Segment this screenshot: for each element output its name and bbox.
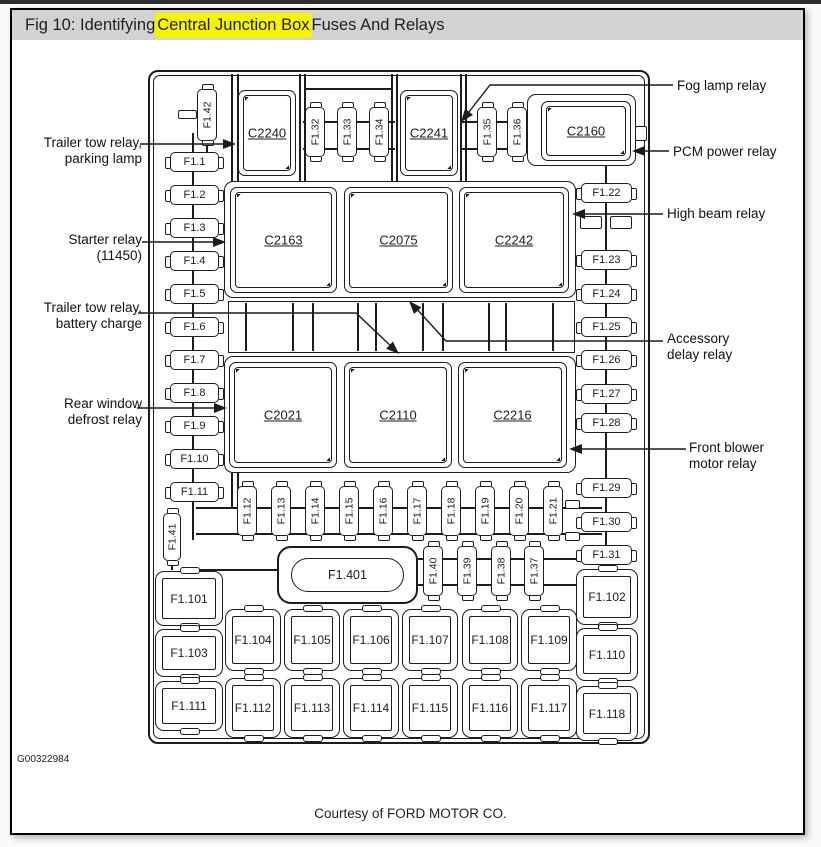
fuse-f1-29: F1.29 — [581, 478, 632, 498]
callout-text: Trailer tow relay, — [44, 300, 142, 316]
band-divider — [312, 303, 314, 351]
fuse-f1-27: F1.27 — [581, 384, 632, 404]
fuse-f1-3: F1.3 — [170, 218, 219, 238]
callout-text: Accessory — [667, 331, 732, 347]
fuse-f1-9: F1.9 — [170, 416, 219, 436]
fuse-f1-18: F1.18 — [441, 486, 461, 536]
connector-tab — [565, 532, 580, 541]
fuse-f1-108: F1.108 — [462, 609, 518, 671]
callout-trailer-tow-relay-battery-charge: Trailer tow relay, battery charge — [44, 300, 142, 332]
fuse-f1-4: F1.4 — [170, 251, 219, 271]
diagram-layer: Trailer tow relay, parking lamp Starter … — [0, 0, 821, 847]
fuse-f1-19: F1.19 — [475, 486, 495, 536]
callout-text: motor relay — [689, 456, 764, 472]
rail-line — [231, 74, 233, 182]
fuse-f1-118: F1.118 — [576, 686, 638, 741]
connector-c2241: C2241 — [400, 90, 458, 176]
fuse-f1-112: F1.112 — [225, 678, 281, 738]
rail-line — [305, 88, 391, 90]
fuse-f1-28: F1.28 — [581, 413, 632, 433]
connector-c2021: C2021 — [229, 362, 337, 468]
fuse-f1-36: F1.36 — [507, 107, 527, 157]
fuse-f1-39: F1.39 — [457, 546, 477, 596]
fuse-f1-21: F1.21 — [543, 486, 563, 536]
fuse-f1-6: F1.6 — [170, 317, 219, 337]
connector-tab — [178, 110, 197, 119]
rail-line — [391, 74, 393, 181]
connector-tab — [565, 500, 580, 509]
callout-text: Front blower — [689, 440, 764, 456]
rail-line — [231, 473, 233, 509]
callout-accessory-delay-relay: Accessory delay relay — [667, 331, 732, 363]
connector-c2163: C2163 — [230, 187, 337, 293]
fuse-f1-5: F1.5 — [170, 284, 219, 304]
fuse-f1-30: F1.30 — [581, 512, 632, 532]
fuse-f1-7: F1.7 — [170, 350, 219, 370]
connector-c2160: C2160 — [541, 101, 631, 161]
fuse-f1-35: F1.35 — [477, 107, 497, 157]
fuse-f1-13: F1.13 — [271, 486, 291, 536]
fuse-f1-23: F1.23 — [581, 250, 632, 270]
callout-trailer-tow-relay-parking-lamp: Trailer tow relay, parking lamp — [44, 135, 142, 167]
fuse-f1-16: F1.16 — [373, 486, 393, 536]
band-divider — [245, 303, 247, 351]
fuse-f1-1: F1.1 — [170, 152, 219, 172]
fuse-f1-34: F1.34 — [369, 107, 389, 157]
connector-c2075: C2075 — [344, 187, 453, 293]
callout-text: Starter relay — [68, 232, 142, 248]
fuse-f1-11: F1.11 — [170, 482, 219, 502]
fuse-f1-22: F1.22 — [581, 183, 632, 203]
band-divider — [375, 303, 377, 351]
callout-rear-window-defrost-relay: Rear window defrost relay — [64, 396, 142, 428]
fuse-f1-109: F1.109 — [521, 609, 577, 671]
connector-tab — [635, 126, 647, 141]
band-divider — [488, 303, 490, 351]
connector-tab — [580, 216, 602, 229]
fuse-f1-116: F1.116 — [462, 678, 518, 738]
fuse-f1-20: F1.20 — [509, 486, 529, 536]
fuse-f1-25: F1.25 — [581, 317, 632, 337]
fuse-f1-17: F1.17 — [407, 486, 427, 536]
connector-c2216: C2216 — [458, 362, 567, 468]
rail-line — [299, 74, 301, 181]
callout-front-blower-motor-relay: Front blower motor relay — [689, 440, 764, 472]
fuse-f1-40: F1.40 — [423, 546, 443, 596]
fuse-f1-32: F1.32 — [305, 107, 325, 157]
callout-text: (11450) — [68, 248, 142, 264]
fuse-f1-114: F1.114 — [343, 678, 399, 738]
callout-starter-relay: Starter relay (11450) — [68, 232, 142, 264]
fuse-f1-10: F1.10 — [170, 449, 219, 469]
callout-text: Fog lamp relay — [677, 78, 766, 94]
connector-c2110: C2110 — [344, 362, 452, 468]
terminal-band — [228, 301, 575, 353]
fuse-f1-37: F1.37 — [524, 546, 544, 596]
callout-high-beam-relay: High beam relay — [667, 206, 765, 222]
callout-pcm-power-relay: PCM power relay — [673, 144, 777, 160]
figure-code: G00322984 — [17, 754, 69, 765]
band-divider — [422, 303, 424, 351]
fuse-f1-41: F1.41 — [163, 513, 181, 561]
fuse-f1-8: F1.8 — [170, 383, 219, 403]
callout-text: Trailer tow relay, — [44, 135, 142, 151]
fuse-f1-26: F1.26 — [581, 350, 632, 370]
fuse-f1-117: F1.117 — [521, 678, 577, 738]
callout-text: delay relay — [667, 347, 732, 363]
fuse-f1-102: F1.102 — [576, 569, 638, 625]
band-divider — [552, 303, 554, 351]
fuse-f1-33: F1.33 — [337, 107, 357, 157]
fuse-f1-15: F1.15 — [339, 486, 359, 536]
callout-text: battery charge — [44, 316, 142, 332]
fuse-f1-31: F1.31 — [581, 545, 632, 565]
fuse-f1-115: F1.115 — [402, 678, 458, 738]
fuse-f1-12: F1.12 — [237, 486, 257, 536]
fuse-f1-38: F1.38 — [491, 546, 511, 596]
fuse-f1-110: F1.110 — [576, 628, 638, 681]
fuse-f1-105: F1.105 — [284, 609, 340, 671]
fuse-f1-113: F1.113 — [284, 678, 340, 738]
fuse-f1-101: F1.101 — [155, 571, 223, 626]
callout-text: Rear window — [64, 396, 142, 412]
fuse-f1-104: F1.104 — [225, 609, 281, 671]
fuse-f1-103: F1.103 — [155, 629, 223, 677]
connector-tab — [610, 216, 632, 229]
callout-text: PCM power relay — [673, 144, 777, 160]
fuse-f1-14: F1.14 — [305, 486, 325, 536]
rail-line — [196, 533, 602, 535]
courtesy-line: Courtesy of FORD MOTOR CO. — [0, 806, 821, 821]
band-divider — [505, 303, 507, 351]
callout-fog-lamp-relay: Fog lamp relay — [677, 78, 766, 94]
rail-line — [460, 74, 462, 181]
callout-text: defrost relay — [64, 412, 142, 428]
fuse-f1-24: F1.24 — [581, 284, 632, 304]
band-divider — [292, 303, 294, 351]
connector-c2242: C2242 — [459, 187, 569, 293]
fuse-f1-2: F1.2 — [170, 185, 219, 205]
fuse-f1-111: F1.111 — [155, 681, 223, 731]
fuse-f1-42: F1.42 — [197, 89, 217, 141]
fuse-f1-106: F1.106 — [343, 609, 399, 671]
band-divider — [442, 303, 444, 351]
rail-line — [396, 74, 398, 181]
band-divider — [357, 303, 359, 351]
fuse-f1-107: F1.107 — [402, 609, 458, 671]
callout-text: parking lamp — [44, 151, 142, 167]
callout-text: High beam relay — [667, 206, 765, 222]
rail-line — [465, 74, 467, 181]
fuse-f1-401: F1.401 — [277, 546, 418, 604]
connector-c2240: C2240 — [238, 90, 296, 176]
